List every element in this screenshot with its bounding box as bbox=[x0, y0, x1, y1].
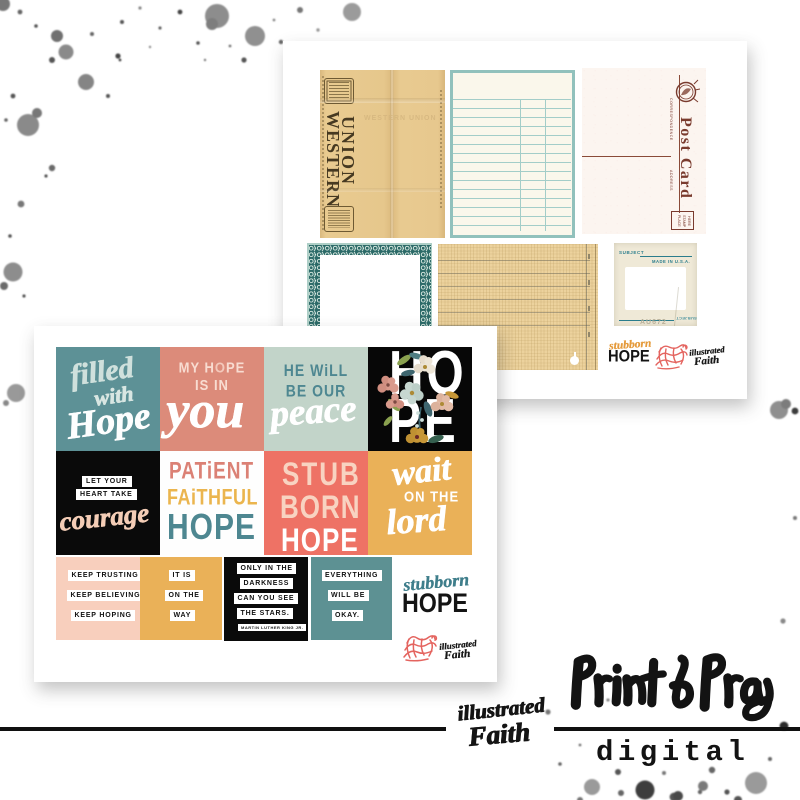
svg-text:STAMP: STAMP bbox=[682, 215, 686, 228]
svg-text:ADDRESS: ADDRESS bbox=[669, 170, 673, 191]
svg-text:HERE: HERE bbox=[687, 216, 691, 227]
svg-text:PLACE: PLACE bbox=[677, 215, 681, 227]
svg-text:Post Card: Post Card bbox=[677, 117, 694, 199]
svg-text:UNION: UNION bbox=[338, 116, 358, 186]
svg-text:CORRESPONDENCE: CORRESPONDENCE bbox=[669, 98, 673, 141]
